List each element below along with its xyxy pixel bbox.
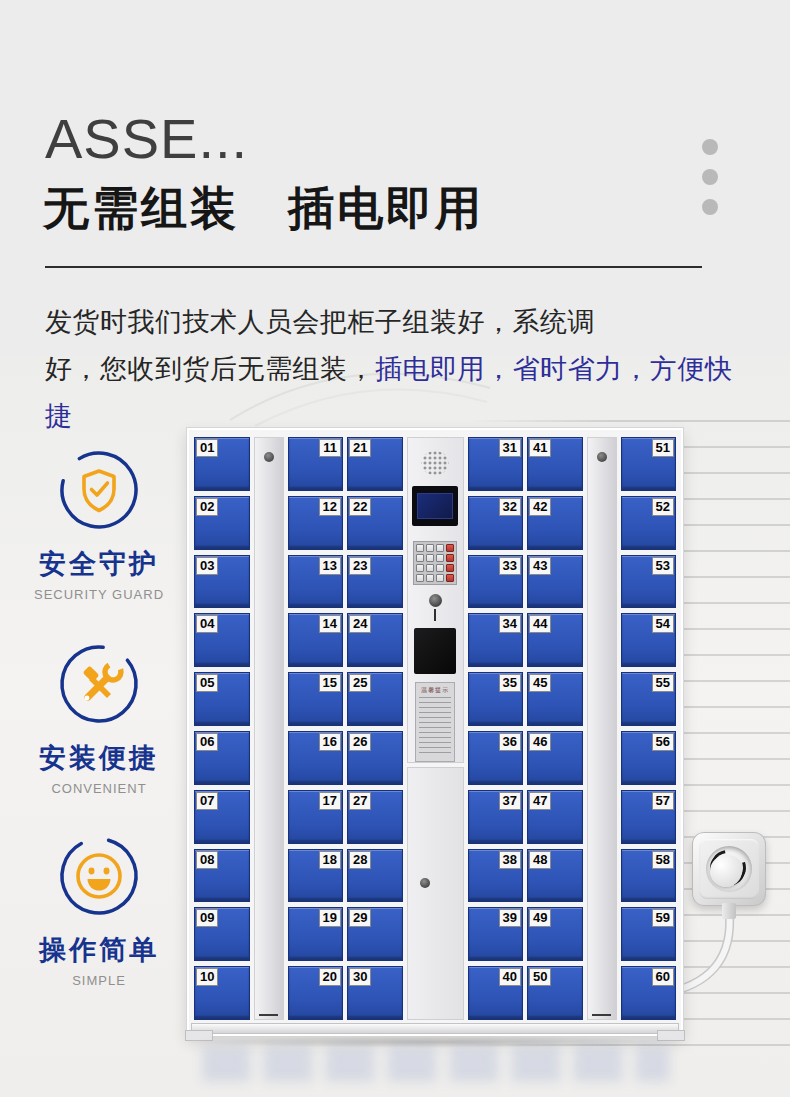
- locker-door: 06: [194, 731, 250, 785]
- door-number-label: 25: [349, 674, 371, 692]
- door-number-label: 51: [652, 439, 674, 457]
- locker-door: 19: [288, 907, 344, 961]
- door-number-label: 29: [349, 909, 371, 927]
- feature-title: 安全守护: [14, 546, 184, 582]
- door-number-label: 57: [652, 792, 674, 810]
- plug-neck: [722, 903, 736, 919]
- door-number-label: 38: [499, 851, 521, 869]
- locker-door: 60: [621, 966, 677, 1020]
- feature-convenient: 安装便捷 CONVENIENT: [14, 642, 184, 796]
- keypad-key: [426, 554, 434, 562]
- locker-door: 24: [347, 613, 403, 667]
- locker-door: 11: [288, 437, 344, 491]
- locker-door: 55: [621, 672, 677, 726]
- locker-door: 45: [527, 672, 583, 726]
- locker-door: 16: [288, 731, 344, 785]
- locker-door: 47: [527, 790, 583, 844]
- notice-text-lines: [419, 697, 451, 757]
- locker-door: 46: [527, 731, 583, 785]
- locker-door: 57: [621, 790, 677, 844]
- locker-door: 36: [468, 731, 524, 785]
- locker-door: 29: [347, 907, 403, 961]
- keypad-key: [436, 564, 444, 572]
- floor-reflection: [202, 1046, 670, 1082]
- locker-door: 13: [288, 555, 344, 609]
- locker-door: 35: [468, 672, 524, 726]
- locker-door: 42: [527, 496, 583, 550]
- keypad-key: [416, 554, 424, 562]
- door-number-label: 26: [349, 733, 371, 751]
- divider-line: [45, 266, 702, 268]
- door-number-label: 54: [652, 615, 674, 633]
- locker-columns: 0102030405060708091011121314151617181920…: [194, 437, 676, 1020]
- locker-door: 08: [194, 849, 250, 903]
- door-number-label: 15: [319, 674, 341, 692]
- locker-door: 18: [288, 849, 344, 903]
- keypad-key: [416, 564, 424, 572]
- keypad-key: [426, 544, 434, 552]
- locker-door-column: 11121314151617181920: [288, 437, 344, 1020]
- service-door-lock-icon: [420, 878, 430, 888]
- locker-door: 21: [347, 437, 403, 491]
- tools-icon: [57, 642, 141, 726]
- socket-icon: [706, 846, 752, 892]
- locker-door-column: 01020304050607080910: [194, 437, 250, 1020]
- locker-door: 02: [194, 496, 250, 550]
- locker-door: 49: [527, 907, 583, 961]
- keypad-key: [436, 554, 444, 562]
- locker-door: 05: [194, 672, 250, 726]
- locker-door: 50: [527, 966, 583, 1020]
- locker-door: 26: [347, 731, 403, 785]
- door-number-label: 02: [196, 498, 218, 516]
- locker-door: 23: [347, 555, 403, 609]
- door-number-label: 23: [349, 557, 371, 575]
- door-number-label: 43: [529, 557, 551, 575]
- door-number-label: 55: [652, 674, 674, 692]
- door-number-label: 60: [652, 968, 674, 986]
- plug-icon: [710, 855, 742, 887]
- panel-lock: [429, 594, 442, 621]
- keypad-key: [446, 574, 454, 582]
- door-number-label: 11: [319, 439, 341, 457]
- locker-door: 09: [194, 907, 250, 961]
- locker-door: 43: [527, 555, 583, 609]
- locker-door: 25: [347, 672, 403, 726]
- locker-door: 22: [347, 496, 403, 550]
- door-number-label: 56: [652, 733, 674, 751]
- locker-door: 38: [468, 849, 524, 903]
- locker-door: 59: [621, 907, 677, 961]
- feature-title: 安装便捷: [14, 740, 184, 776]
- door-number-label: 45: [529, 674, 551, 692]
- locker-door: 44: [527, 613, 583, 667]
- door-number-label: 34: [499, 615, 521, 633]
- dot-icon: [702, 169, 718, 185]
- door-number-label: 47: [529, 792, 551, 810]
- door-number-label: 46: [529, 733, 551, 751]
- locker-side-strip: [254, 437, 284, 1020]
- door-number-label: 37: [499, 792, 521, 810]
- locker-door: 01: [194, 437, 250, 491]
- feature-subtitle: CONVENIENT: [14, 781, 184, 796]
- door-number-label: 36: [499, 733, 521, 751]
- description-text: 发货时我们技术人员会把柜子组装好，系统调好，您收到货后无需组装，插电即用，省时省…: [45, 299, 757, 440]
- description-line2: 好，您收到货后无需组装，: [45, 354, 375, 384]
- locker-door: 10: [194, 966, 250, 1020]
- door-number-label: 32: [499, 498, 521, 516]
- locker-door-column: 51525354555657585960: [621, 437, 677, 1020]
- locker-door: 52: [621, 496, 677, 550]
- door-number-label: 52: [652, 498, 674, 516]
- door-number-label: 05: [196, 674, 218, 692]
- speaker-grille-icon: [421, 451, 449, 475]
- locker-door: 14: [288, 613, 344, 667]
- door-number-label: 13: [319, 557, 341, 575]
- door-number-label: 22: [349, 498, 371, 516]
- door-number-label: 10: [196, 968, 218, 986]
- locker-door: 27: [347, 790, 403, 844]
- locker-door-column: 21222324252627282930: [347, 437, 403, 1020]
- description-line1: 发货时我们技术人员会把柜子组装好，系统调: [45, 307, 595, 337]
- locker-door: 07: [194, 790, 250, 844]
- door-number-label: 24: [349, 615, 371, 633]
- notice-title: 温馨提示: [419, 687, 451, 694]
- locker-door: 32: [468, 496, 524, 550]
- door-number-label: 12: [319, 498, 341, 516]
- door-number-label: 50: [529, 968, 551, 986]
- locker-door: 04: [194, 613, 250, 667]
- keypad-key: [426, 574, 434, 582]
- page-title-english: ASSE...: [45, 106, 248, 171]
- locker-door: 58: [621, 849, 677, 903]
- locker-door: 15: [288, 672, 344, 726]
- dot-icon: [702, 199, 718, 215]
- service-door: [407, 767, 464, 1020]
- locker-door: 40: [468, 966, 524, 1020]
- door-number-label: 19: [319, 909, 341, 927]
- door-number-label: 03: [196, 557, 218, 575]
- door-number-label: 40: [499, 968, 521, 986]
- locker-door: 34: [468, 613, 524, 667]
- door-number-label: 41: [529, 439, 551, 457]
- door-number-label: 44: [529, 615, 551, 633]
- locker-door: 39: [468, 907, 524, 961]
- display-screen: [412, 486, 458, 526]
- keypad-key: [446, 564, 454, 572]
- strip-lock-icon: [597, 452, 607, 462]
- door-number-label: 04: [196, 615, 218, 633]
- door-number-label: 48: [529, 851, 551, 869]
- locker-door: 28: [347, 849, 403, 903]
- feature-subtitle: SIMPLE: [14, 973, 184, 988]
- door-number-label: 17: [319, 792, 341, 810]
- door-number-label: 18: [319, 851, 341, 869]
- locker-door: 17: [288, 790, 344, 844]
- door-number-label: 14: [319, 615, 341, 633]
- locker-door: 56: [621, 731, 677, 785]
- card-reader-panel: [414, 628, 456, 674]
- door-number-label: 42: [529, 498, 551, 516]
- keypad-key: [436, 544, 444, 552]
- locker-door: 33: [468, 555, 524, 609]
- dot-icon: [702, 139, 718, 155]
- locker-door: 12: [288, 496, 344, 550]
- door-number-label: 16: [319, 733, 341, 751]
- keypad-key: [416, 544, 424, 552]
- feature-simple: 操作简单 SIMPLE: [14, 834, 184, 988]
- locker-door: 53: [621, 555, 677, 609]
- door-number-label: 39: [499, 909, 521, 927]
- keypad-key: [446, 554, 454, 562]
- outlet-inner-plate: [699, 839, 759, 899]
- decorative-dots: [702, 139, 718, 215]
- door-number-label: 01: [196, 439, 218, 457]
- door-number-label: 31: [499, 439, 521, 457]
- door-number-label: 27: [349, 792, 371, 810]
- door-number-label: 35: [499, 674, 521, 692]
- locker-cabinet: 0102030405060708091011121314151617181920…: [186, 427, 684, 1037]
- feature-security: 安全守护 SECURITY GUARD: [14, 448, 184, 602]
- locker-door-column: 41424344454647484950: [527, 437, 583, 1020]
- locker-door: 31: [468, 437, 524, 491]
- screen-lcd: [417, 493, 453, 519]
- locker-door: 03: [194, 555, 250, 609]
- power-outlet: [692, 832, 766, 906]
- locker-side-strip: [587, 437, 617, 1020]
- door-number-label: 53: [652, 557, 674, 575]
- door-number-label: 21: [349, 439, 371, 457]
- keypad-key: [426, 564, 434, 572]
- locker-door: 48: [527, 849, 583, 903]
- locker-door: 20: [288, 966, 344, 1020]
- door-number-label: 07: [196, 792, 218, 810]
- door-number-label: 58: [652, 851, 674, 869]
- door-number-label: 49: [529, 909, 551, 927]
- feature-title: 操作简单: [14, 932, 184, 968]
- page-title-chinese: 无需组装 插电即用: [43, 178, 484, 240]
- door-number-label: 28: [349, 851, 371, 869]
- door-number-label: 59: [652, 909, 674, 927]
- lock-cylinder-icon: [429, 594, 442, 607]
- door-number-label: 30: [349, 968, 371, 986]
- door-number-label: 06: [196, 733, 218, 751]
- locker-door: 51: [621, 437, 677, 491]
- strip-lock-icon: [264, 452, 274, 462]
- locker-door: 54: [621, 613, 677, 667]
- locker-door: 30: [347, 966, 403, 1020]
- locker-door: 41: [527, 437, 583, 491]
- notice-label: 温馨提示: [415, 682, 455, 762]
- door-number-label: 08: [196, 851, 218, 869]
- control-panel-column: 温馨提示: [407, 437, 464, 1020]
- door-number-label: 20: [319, 968, 341, 986]
- door-number-label: 09: [196, 909, 218, 927]
- feature-subtitle: SECURITY GUARD: [14, 587, 184, 602]
- cabinet-base: [191, 1023, 679, 1034]
- keypad-key: [416, 574, 424, 582]
- door-number-label: 33: [499, 557, 521, 575]
- keypad: [413, 541, 457, 585]
- smiley-icon: [57, 834, 141, 918]
- control-panel: 温馨提示: [407, 437, 464, 763]
- keypad-key: [436, 574, 444, 582]
- locker-door: 37: [468, 790, 524, 844]
- keypad-key: [446, 544, 454, 552]
- locker-door-column: 31323334353637383940: [468, 437, 524, 1020]
- key-icon: [434, 609, 436, 621]
- shield-check-icon: [57, 448, 141, 532]
